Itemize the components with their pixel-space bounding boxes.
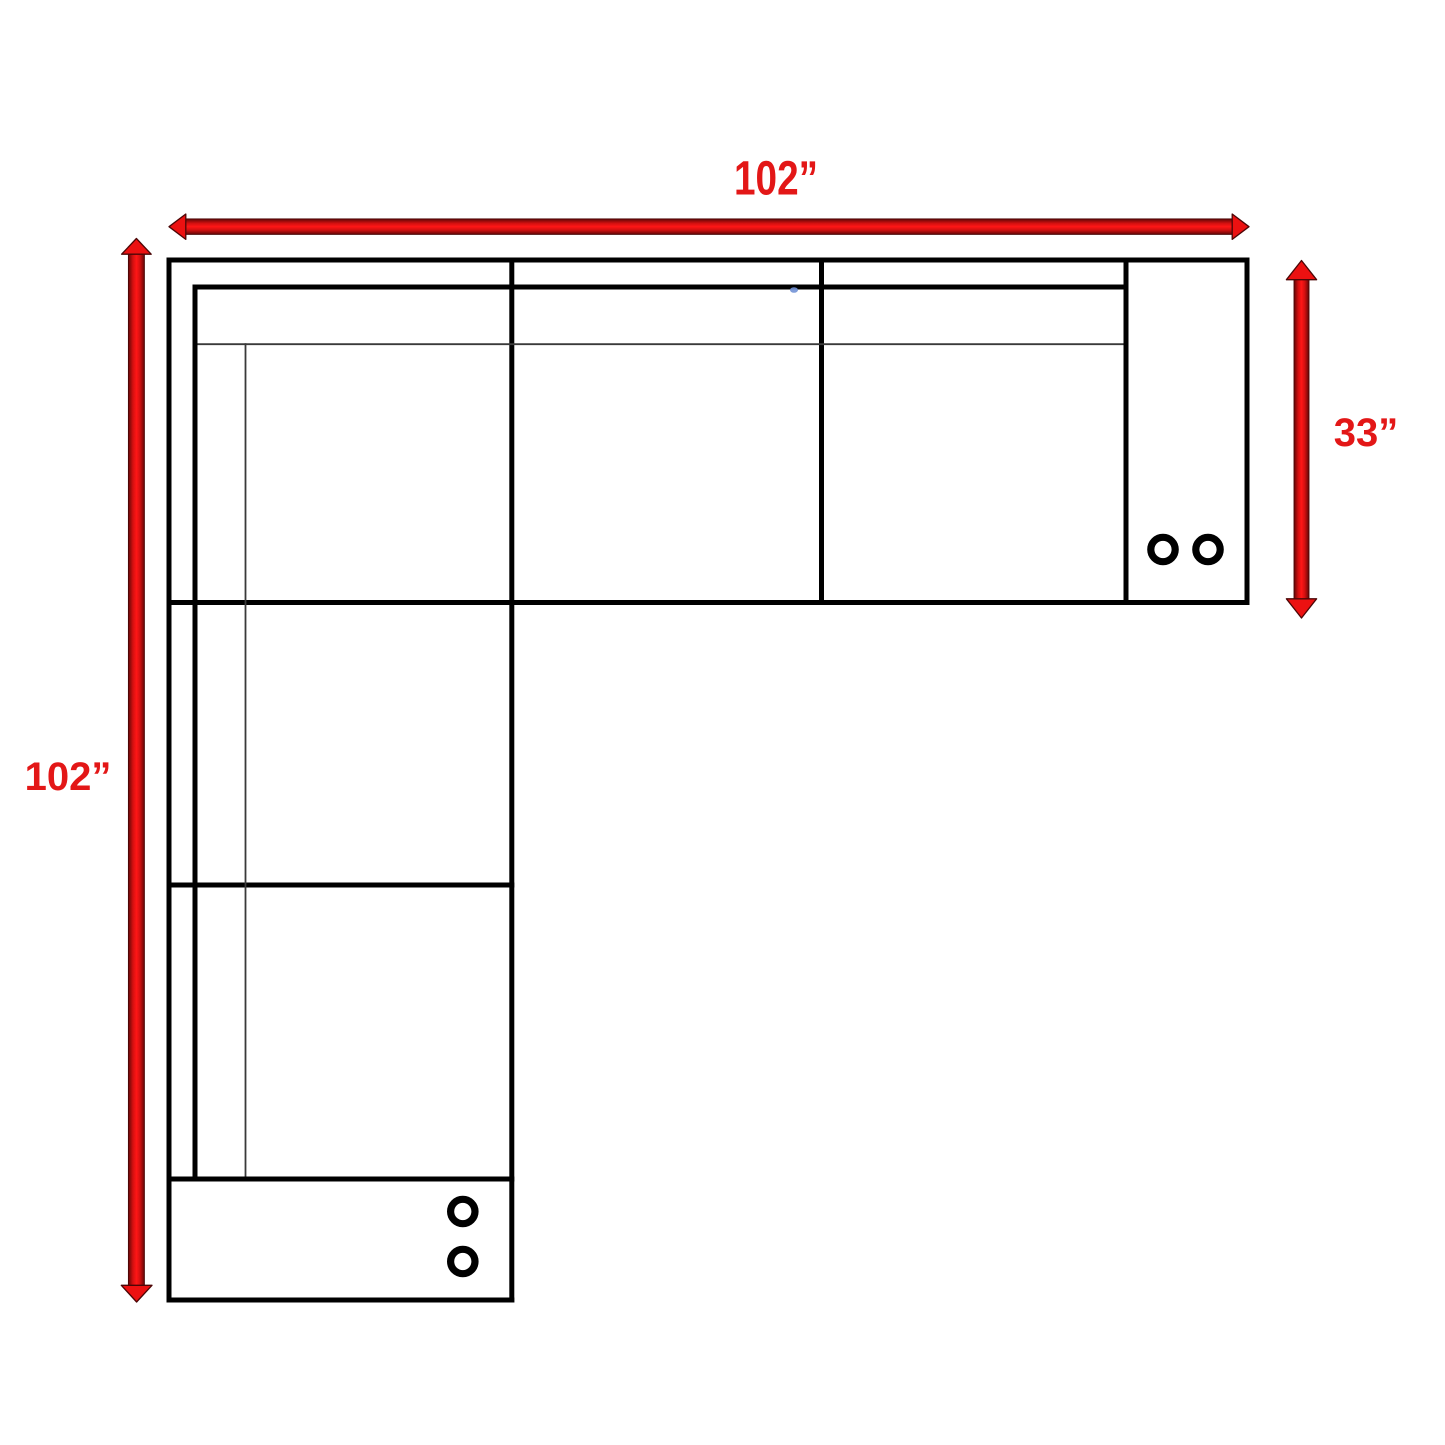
svg-text:102”: 102”: [25, 755, 112, 799]
svg-text:33”: 33”: [1334, 411, 1399, 455]
svg-text:102”: 102”: [734, 153, 818, 206]
